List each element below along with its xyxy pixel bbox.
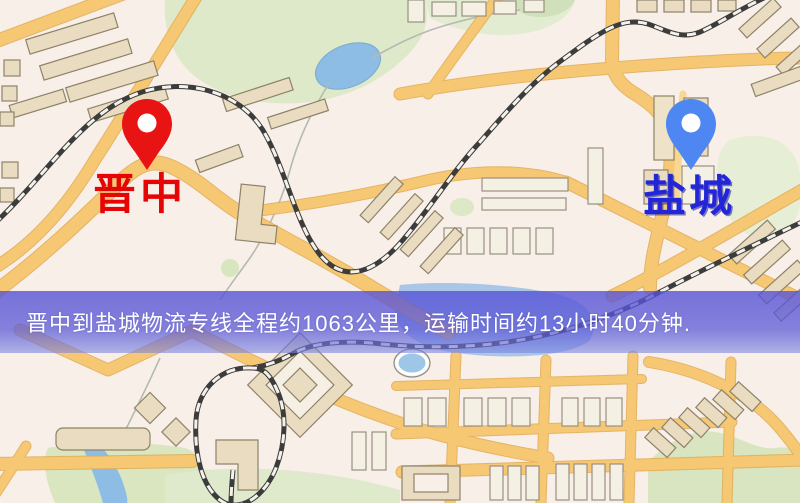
route-info-text: 晋中到盐城物流专线全程约1063公里，运输时间约13小时40分钟.	[26, 306, 691, 338]
origin-pin-icon	[119, 97, 175, 173]
map-screenshot: 晋中到盐城物流专线全程约1063公里，运输时间约13小时40分钟. 晋中 盐城	[0, 0, 800, 503]
origin-pin[interactable]	[119, 97, 175, 173]
destination-pin[interactable]	[663, 97, 719, 173]
destination-pin-icon	[663, 97, 719, 173]
destination-city-label: 盐城	[643, 176, 735, 219]
map-background	[0, 0, 800, 503]
route-info-banner: 晋中到盐城物流专线全程约1063公里，运输时间约13小时40分钟.	[0, 291, 800, 353]
origin-city-label: 晋中	[93, 174, 187, 217]
